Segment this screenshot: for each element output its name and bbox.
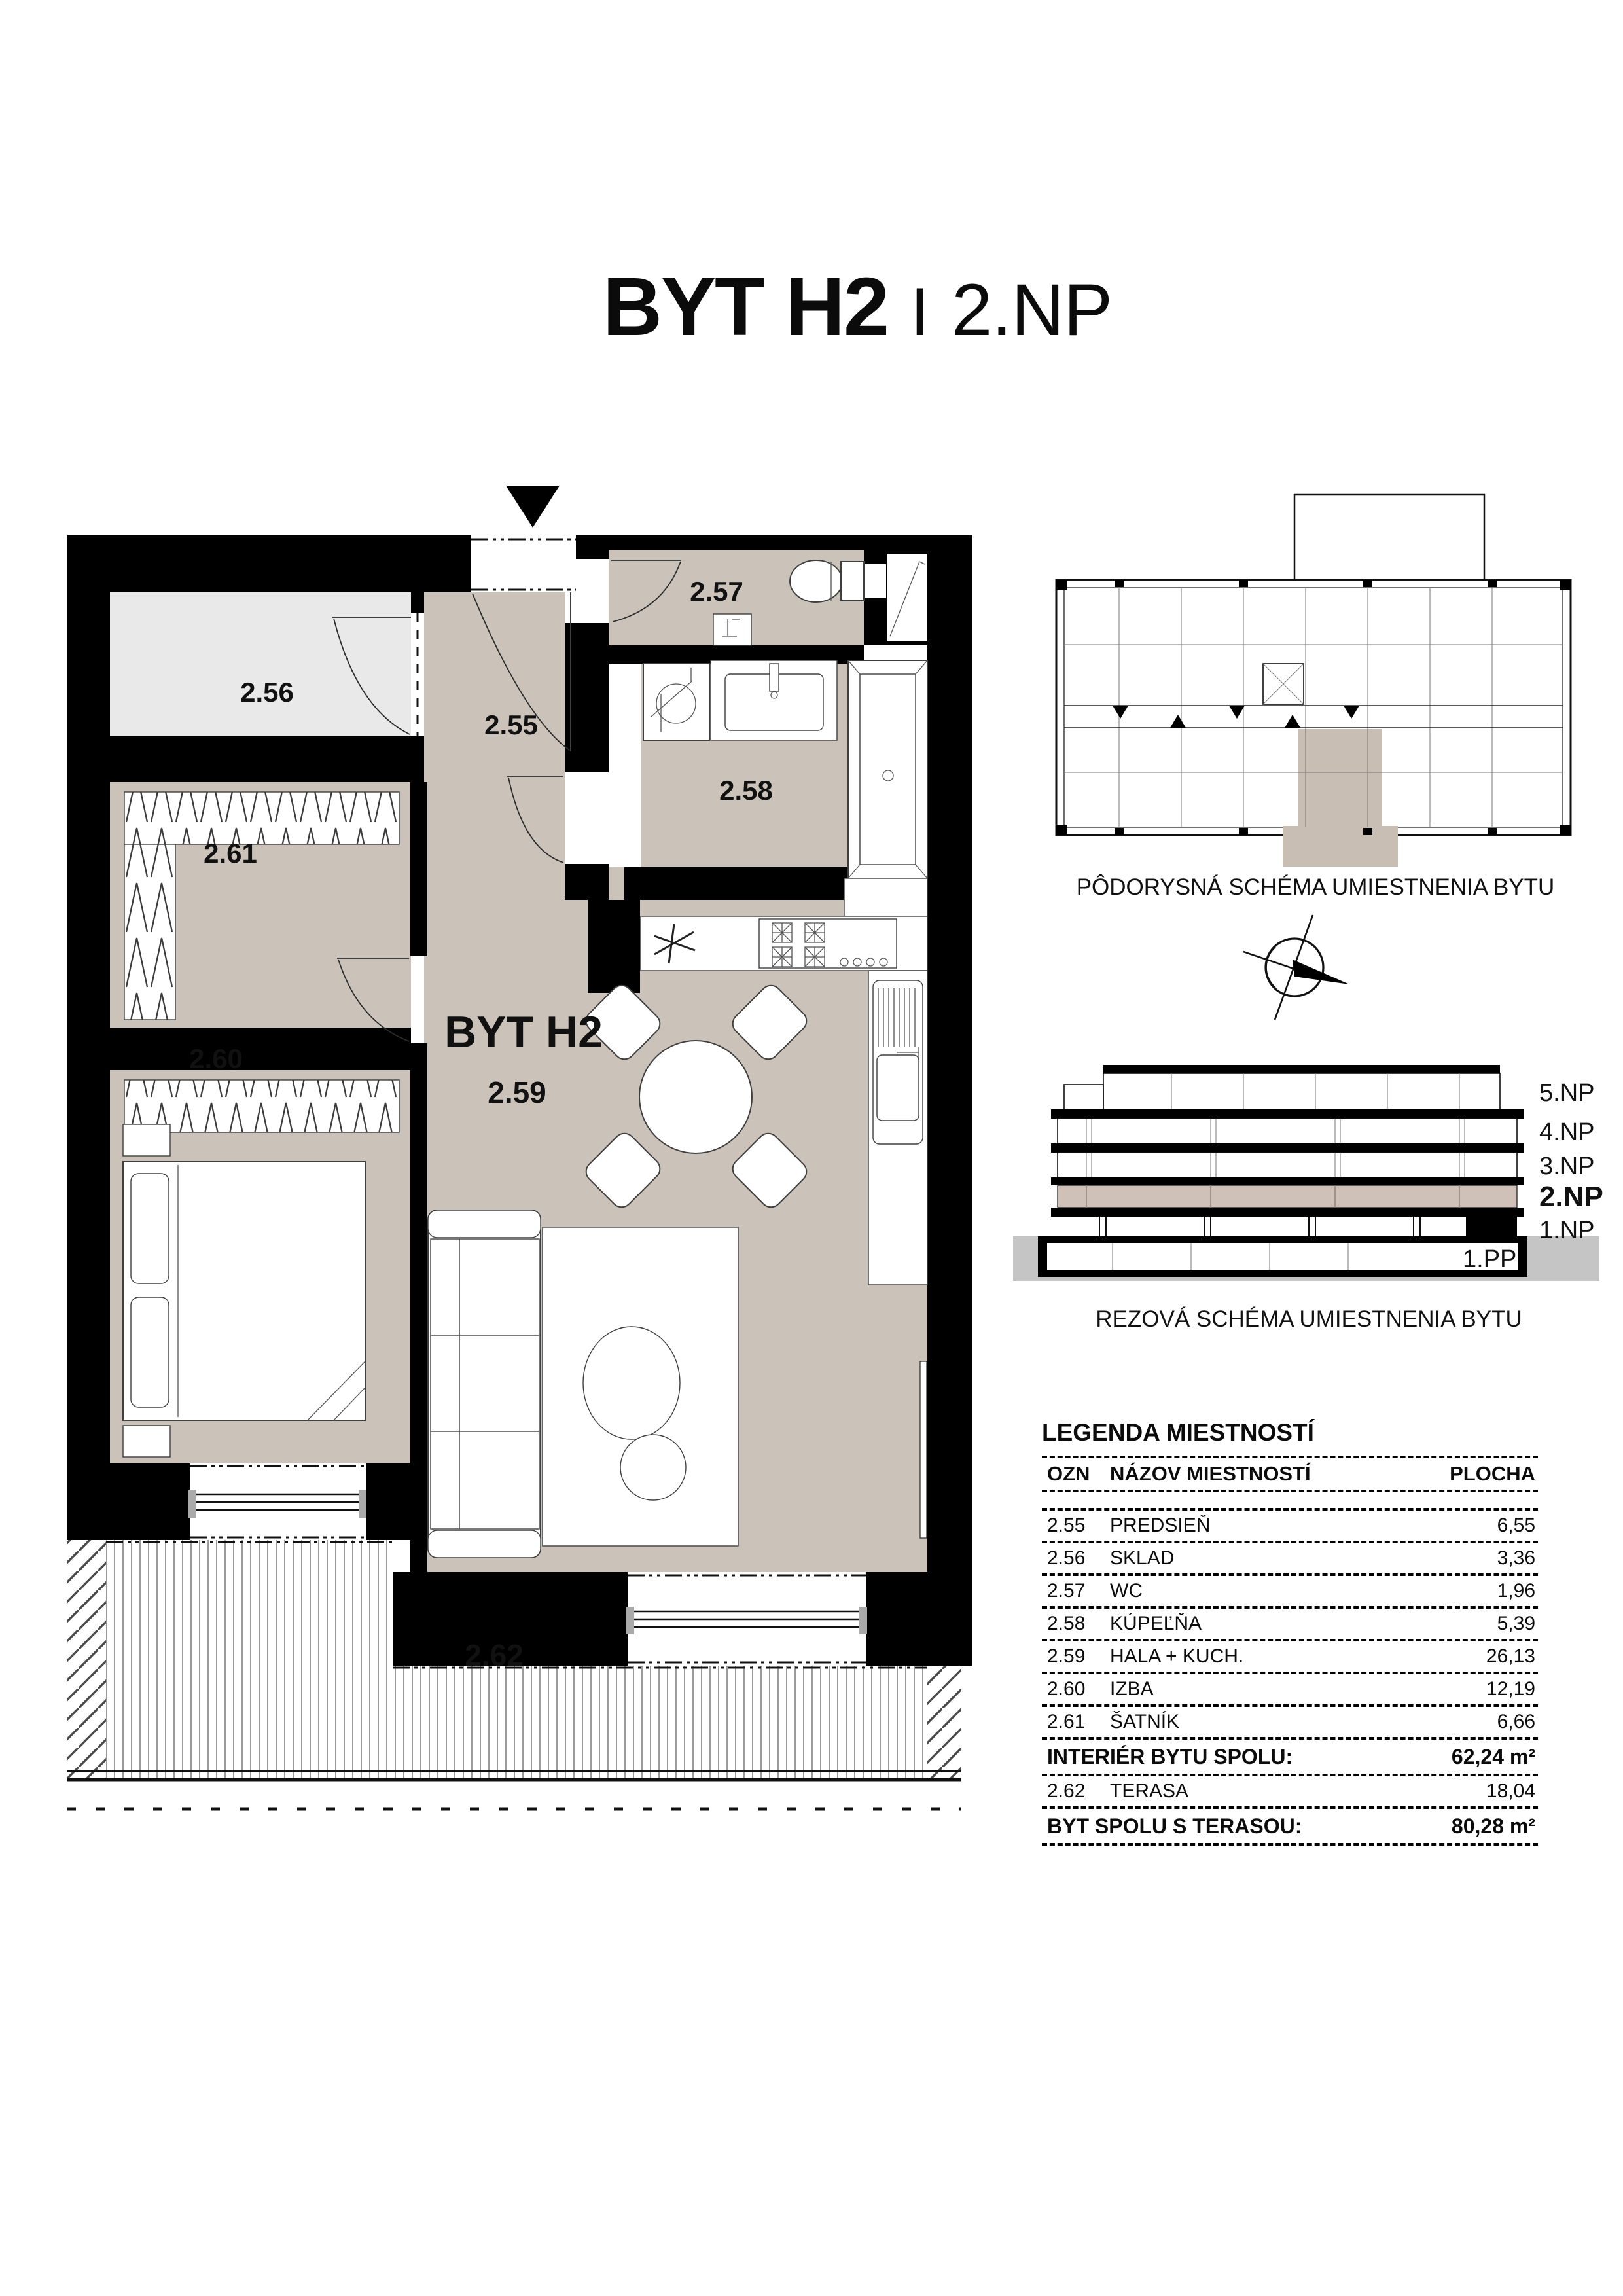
wc-basin-icon	[713, 614, 751, 645]
washer-icon	[643, 664, 709, 740]
entrance-recess	[471, 535, 576, 592]
grand-total-value: 80,28 m²	[1414, 1814, 1538, 1839]
legend-row: 2.61 ŠATNÍK 6,66	[1042, 1707, 1538, 1737]
floor-1np-columns	[1099, 1217, 1517, 1236]
room-label-wardrobe: 2.61	[204, 838, 257, 869]
room-label-terrace: 2.62	[465, 1638, 524, 1672]
entry-arrows	[1113, 706, 1359, 728]
col-name: NÁZOV MIESTNOSTÍ	[1110, 1462, 1414, 1486]
row-name: KÚPEĽŇA	[1110, 1613, 1414, 1635]
unit-name-label: BYT H2	[444, 1007, 603, 1057]
drawing-canvas: 2.56 2.55 2.57 2.58 2.61 2.60 BYT H2 2.5…	[0, 0, 1623, 2296]
legend-row: 2.56 SKLAD 3,36	[1042, 1543, 1538, 1573]
row-area: 26,13	[1414, 1645, 1538, 1668]
dining-table	[639, 1041, 752, 1153]
roof-slab	[1103, 1065, 1500, 1073]
kitchen-sink-basin	[877, 1055, 919, 1121]
row-ozn: 2.57	[1042, 1580, 1110, 1602]
coffee-table	[583, 1327, 680, 1439]
interior-total-value: 62,24 m²	[1414, 1745, 1538, 1769]
row-area: 6,55	[1414, 1515, 1538, 1537]
floor-label-2np: 2.NP	[1539, 1181, 1603, 1213]
corridor	[1064, 706, 1563, 728]
row-ozn: 2.58	[1042, 1613, 1110, 1635]
highlighted-unit-terrace	[1283, 826, 1398, 867]
row-name: HALA + KUCH.	[1110, 1645, 1414, 1668]
tv-bench	[920, 1361, 927, 1538]
interior-total-label: INTERIÉR BYTU SPOLU:	[1042, 1745, 1414, 1769]
legend-table: LEGENDA MIESTNOSTÍ OZN NÁZOV MIESTNOSTÍ …	[1042, 1419, 1538, 1846]
row-area: 5,39	[1414, 1613, 1538, 1635]
location-plan	[1056, 495, 1571, 867]
highlighted-unit	[1298, 729, 1382, 826]
entrance-arrow-icon	[506, 486, 560, 528]
floor-4np	[1058, 1119, 1517, 1143]
row-ozn: 2.56	[1042, 1547, 1110, 1570]
sheet: BYT H2I2.NP	[0, 0, 1623, 2296]
toilet-icon	[790, 560, 842, 602]
nightstand	[123, 1124, 170, 1156]
floor-plan: 2.56 2.55 2.57 2.58 2.61 2.60 BYT H2 2.5…	[67, 486, 972, 1809]
row-area: 1,96	[1414, 1580, 1538, 1602]
interior-total-row: INTERIÉR BYTU SPOLU: 62,24 m²	[1042, 1740, 1538, 1774]
row-name: TERASA	[1110, 1780, 1414, 1803]
storage-floor	[110, 592, 411, 736]
toilet-tank	[841, 562, 864, 601]
section-caption: REZOVÁ SCHÉMA UMIESTNENIA BYTU	[1008, 1306, 1610, 1333]
floor-label-3np: 3.NP	[1539, 1153, 1594, 1180]
legend-row: 2.57 WC 1,96	[1042, 1576, 1538, 1606]
row-name: ŠATNÍK	[1110, 1711, 1414, 1733]
row-ozn: 2.59	[1042, 1645, 1110, 1668]
room-label-bedroom: 2.60	[189, 1043, 243, 1074]
floor-label-4np: 4.NP	[1539, 1119, 1594, 1146]
row-area: 18,04	[1414, 1780, 1538, 1803]
terrace-deck-left	[106, 1540, 393, 1778]
side-table	[620, 1435, 686, 1500]
grand-total-label: BYT SPOLU S TERASOU:	[1042, 1814, 1414, 1839]
room-label-hall: 2.55	[484, 709, 538, 740]
bedroom-furniture	[123, 1124, 365, 1457]
pillow	[131, 1174, 169, 1283]
basement	[1047, 1243, 1518, 1270]
floor-label-5np: 5.NP	[1539, 1079, 1594, 1107]
pillow	[131, 1297, 169, 1407]
room-label-storage: 2.56	[240, 677, 294, 708]
legend-row: 2.58 KÚPEĽŇA 5,39	[1042, 1609, 1538, 1639]
row-ozn: 2.60	[1042, 1678, 1110, 1700]
row-area: 12,19	[1414, 1678, 1538, 1700]
nightstand	[123, 1426, 170, 1457]
floor-3np	[1058, 1153, 1517, 1177]
floor-2np-highlighted	[1058, 1185, 1517, 1208]
location-plan-caption: PÔDORYSNÁ SCHÉMA UMIESTNENIA BYTU	[1021, 874, 1610, 901]
building-protrusion	[1294, 495, 1484, 580]
legend-header-row: OZN NÁZOV MIESTNOSTÍ PLOCHA	[1042, 1458, 1538, 1490]
lounge	[428, 1210, 738, 1558]
legend-row-terrace: 2.62 TERASA 18,04	[1042, 1776, 1538, 1806]
room-label-living: 2.59	[488, 1075, 546, 1109]
legend-row: 2.55 PREDSIEŇ 6,55	[1042, 1511, 1538, 1541]
col-ozn: OZN	[1042, 1462, 1110, 1486]
row-name: IZBA	[1110, 1678, 1414, 1700]
compass-icon	[1243, 915, 1349, 1020]
row-area: 3,36	[1414, 1547, 1538, 1570]
col-area: PLOCHA	[1414, 1462, 1538, 1486]
floor-label-1np: 1.NP	[1539, 1217, 1594, 1244]
section-diagram: 5.NP 4.NP 3.NP 2.NP 1.NP 1.PP	[1013, 1065, 1603, 1281]
row-ozn: 2.55	[1042, 1515, 1110, 1537]
row-area: 6,66	[1414, 1711, 1538, 1733]
room-label-bath: 2.58	[719, 775, 773, 806]
floor-label-1pp: 1.PP	[1463, 1246, 1516, 1273]
row-ozn: 2.61	[1042, 1711, 1110, 1733]
legend-title: LEGENDA MIESTNOSTÍ	[1042, 1419, 1538, 1456]
row-ozn: 2.62	[1042, 1780, 1110, 1803]
room-label-wc: 2.57	[690, 576, 743, 607]
legend-row: 2.59 HALA + KUCH. 26,13	[1042, 1641, 1538, 1672]
empty-row	[1042, 1492, 1538, 1508]
floor-5np	[1103, 1073, 1500, 1109]
row-name: WC	[1110, 1580, 1414, 1602]
terrace-deck-right	[393, 1666, 927, 1778]
legend-row: 2.60 IZBA 12,19	[1042, 1674, 1538, 1704]
row-name: PREDSIEŇ	[1110, 1515, 1414, 1537]
grand-total-row: BYT SPOLU S TERASOU: 80,28 m²	[1042, 1809, 1538, 1843]
roof-step	[1064, 1085, 1103, 1109]
kitchen-tall-cabinet	[844, 878, 927, 918]
row-name: SKLAD	[1110, 1547, 1414, 1570]
